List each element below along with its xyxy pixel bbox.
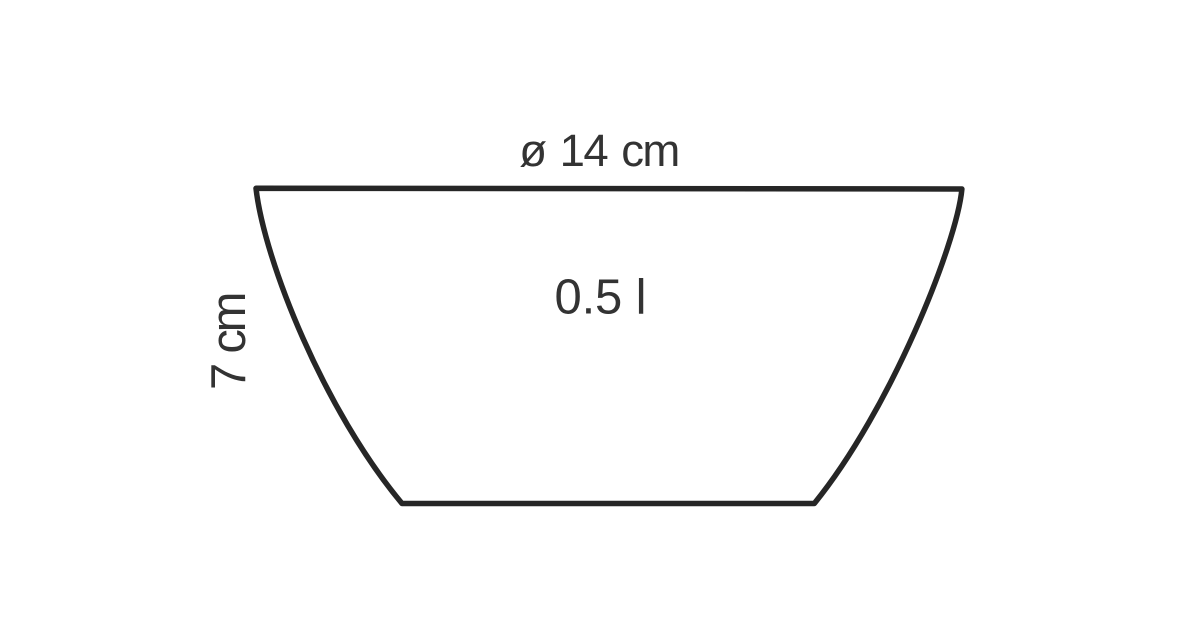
- svg-text:ø 14 cm: ø 14 cm: [519, 125, 680, 176]
- svg-text:0.5 l: 0.5 l: [555, 271, 647, 325]
- svg-text:7 cm: 7 cm: [202, 292, 256, 391]
